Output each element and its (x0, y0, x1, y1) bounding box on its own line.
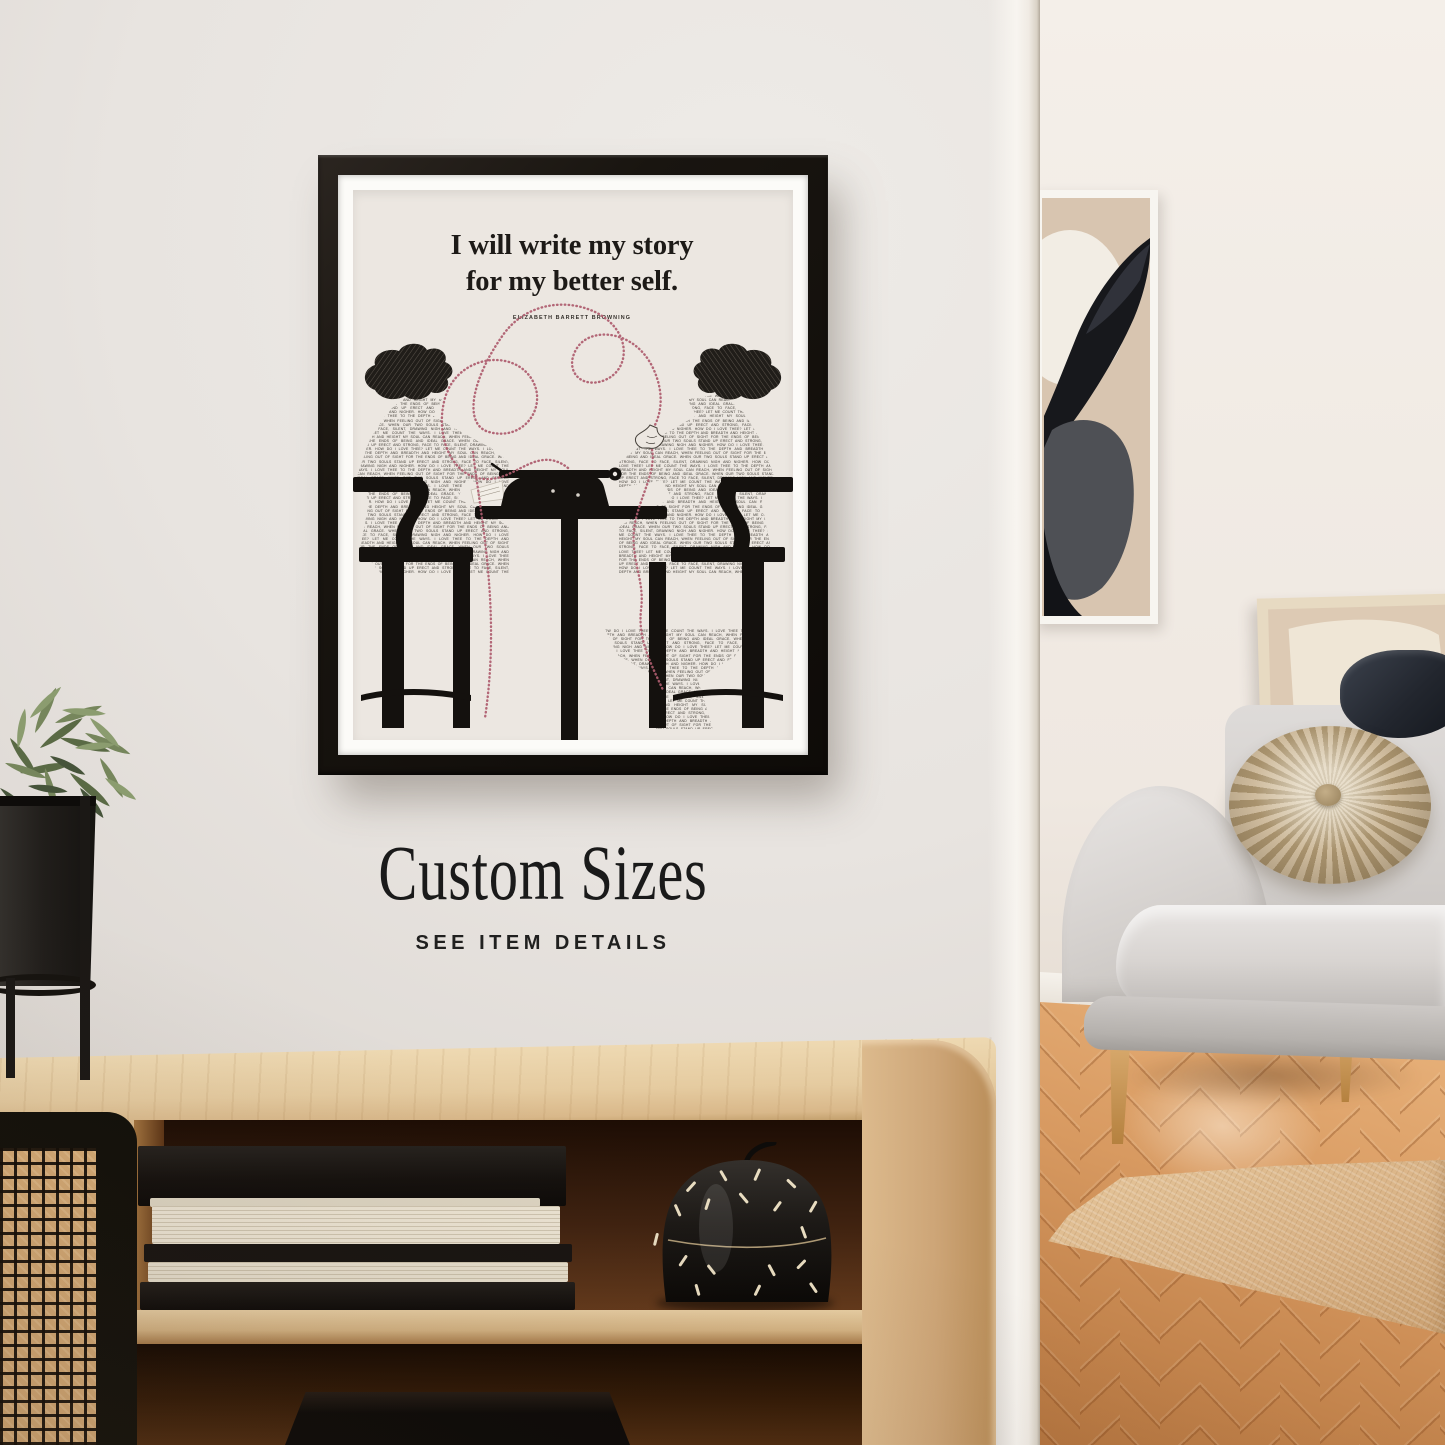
abstract-art-graphic (1042, 198, 1150, 616)
book-black-thin (144, 1244, 572, 1262)
plant-stand-leg-front (80, 796, 90, 1080)
sofa-seat-cushion (1116, 905, 1445, 1007)
back-room (1040, 0, 1445, 1445)
jar-graphic (652, 1142, 842, 1314)
typewriter-paper (471, 481, 504, 503)
book-pages-2 (148, 1262, 568, 1282)
book-top-black (138, 1146, 566, 1206)
book-pages-thick (152, 1206, 560, 1244)
round-pleated-pillow (1229, 726, 1431, 884)
wall-promo: Custom Sizes SEE ITEM DETAILS (193, 836, 893, 955)
book-bottom-black (140, 1282, 575, 1310)
cane-door-frame (0, 1112, 137, 1445)
poster-mat: HOW DO I LOVE THEE? LET ME COUNT THE WAY… (338, 175, 808, 755)
cane-webbing (0, 1148, 96, 1445)
potted-plant (0, 678, 160, 1088)
poster-quote-line1: I will write my story (451, 230, 694, 261)
right-chair (649, 477, 793, 728)
pillow-center-button (1315, 784, 1341, 806)
sideboard-shelf (134, 1310, 862, 1344)
poster-frame: HOW DO I LOVE THEE? LET ME COUNT THE WAY… (318, 155, 828, 775)
table (475, 506, 667, 740)
wall-art-top-frame (1040, 190, 1158, 624)
wooden-sideboard (0, 1036, 996, 1445)
promo-headline: Custom Sizes (281, 836, 806, 910)
poster-illustration: I will write my story for my better self… (353, 190, 793, 740)
plant-stand-leg-left (6, 978, 15, 1078)
dark-pillow (1340, 650, 1445, 738)
jar-twig-knob (747, 1143, 774, 1160)
typewriter (471, 464, 622, 506)
left-chair (353, 477, 473, 728)
figure-right-hair (694, 344, 782, 400)
black-tray (285, 1392, 630, 1445)
wall-art-top-canvas (1042, 198, 1150, 616)
promo-subline: SEE ITEM DETAILS (193, 932, 893, 955)
scene-photo: HOW DO I LOVE THEE? LET ME COUNT THE WAY… (0, 0, 1445, 1445)
sideboard-rounded-side (862, 1040, 996, 1445)
sofa-base-frame (1084, 995, 1445, 1060)
poster-attribution: ELIZABETH BARRETT BROWNING (513, 315, 631, 321)
poster-print: HOW DO I LOVE THEE? LET ME COUNT THE WAY… (353, 190, 793, 740)
speckled-candle-jar (652, 1142, 842, 1314)
figure-left-hair (365, 344, 453, 400)
poster-quote-line2: for my better self. (466, 266, 678, 297)
hand-holding-thread (635, 425, 664, 448)
